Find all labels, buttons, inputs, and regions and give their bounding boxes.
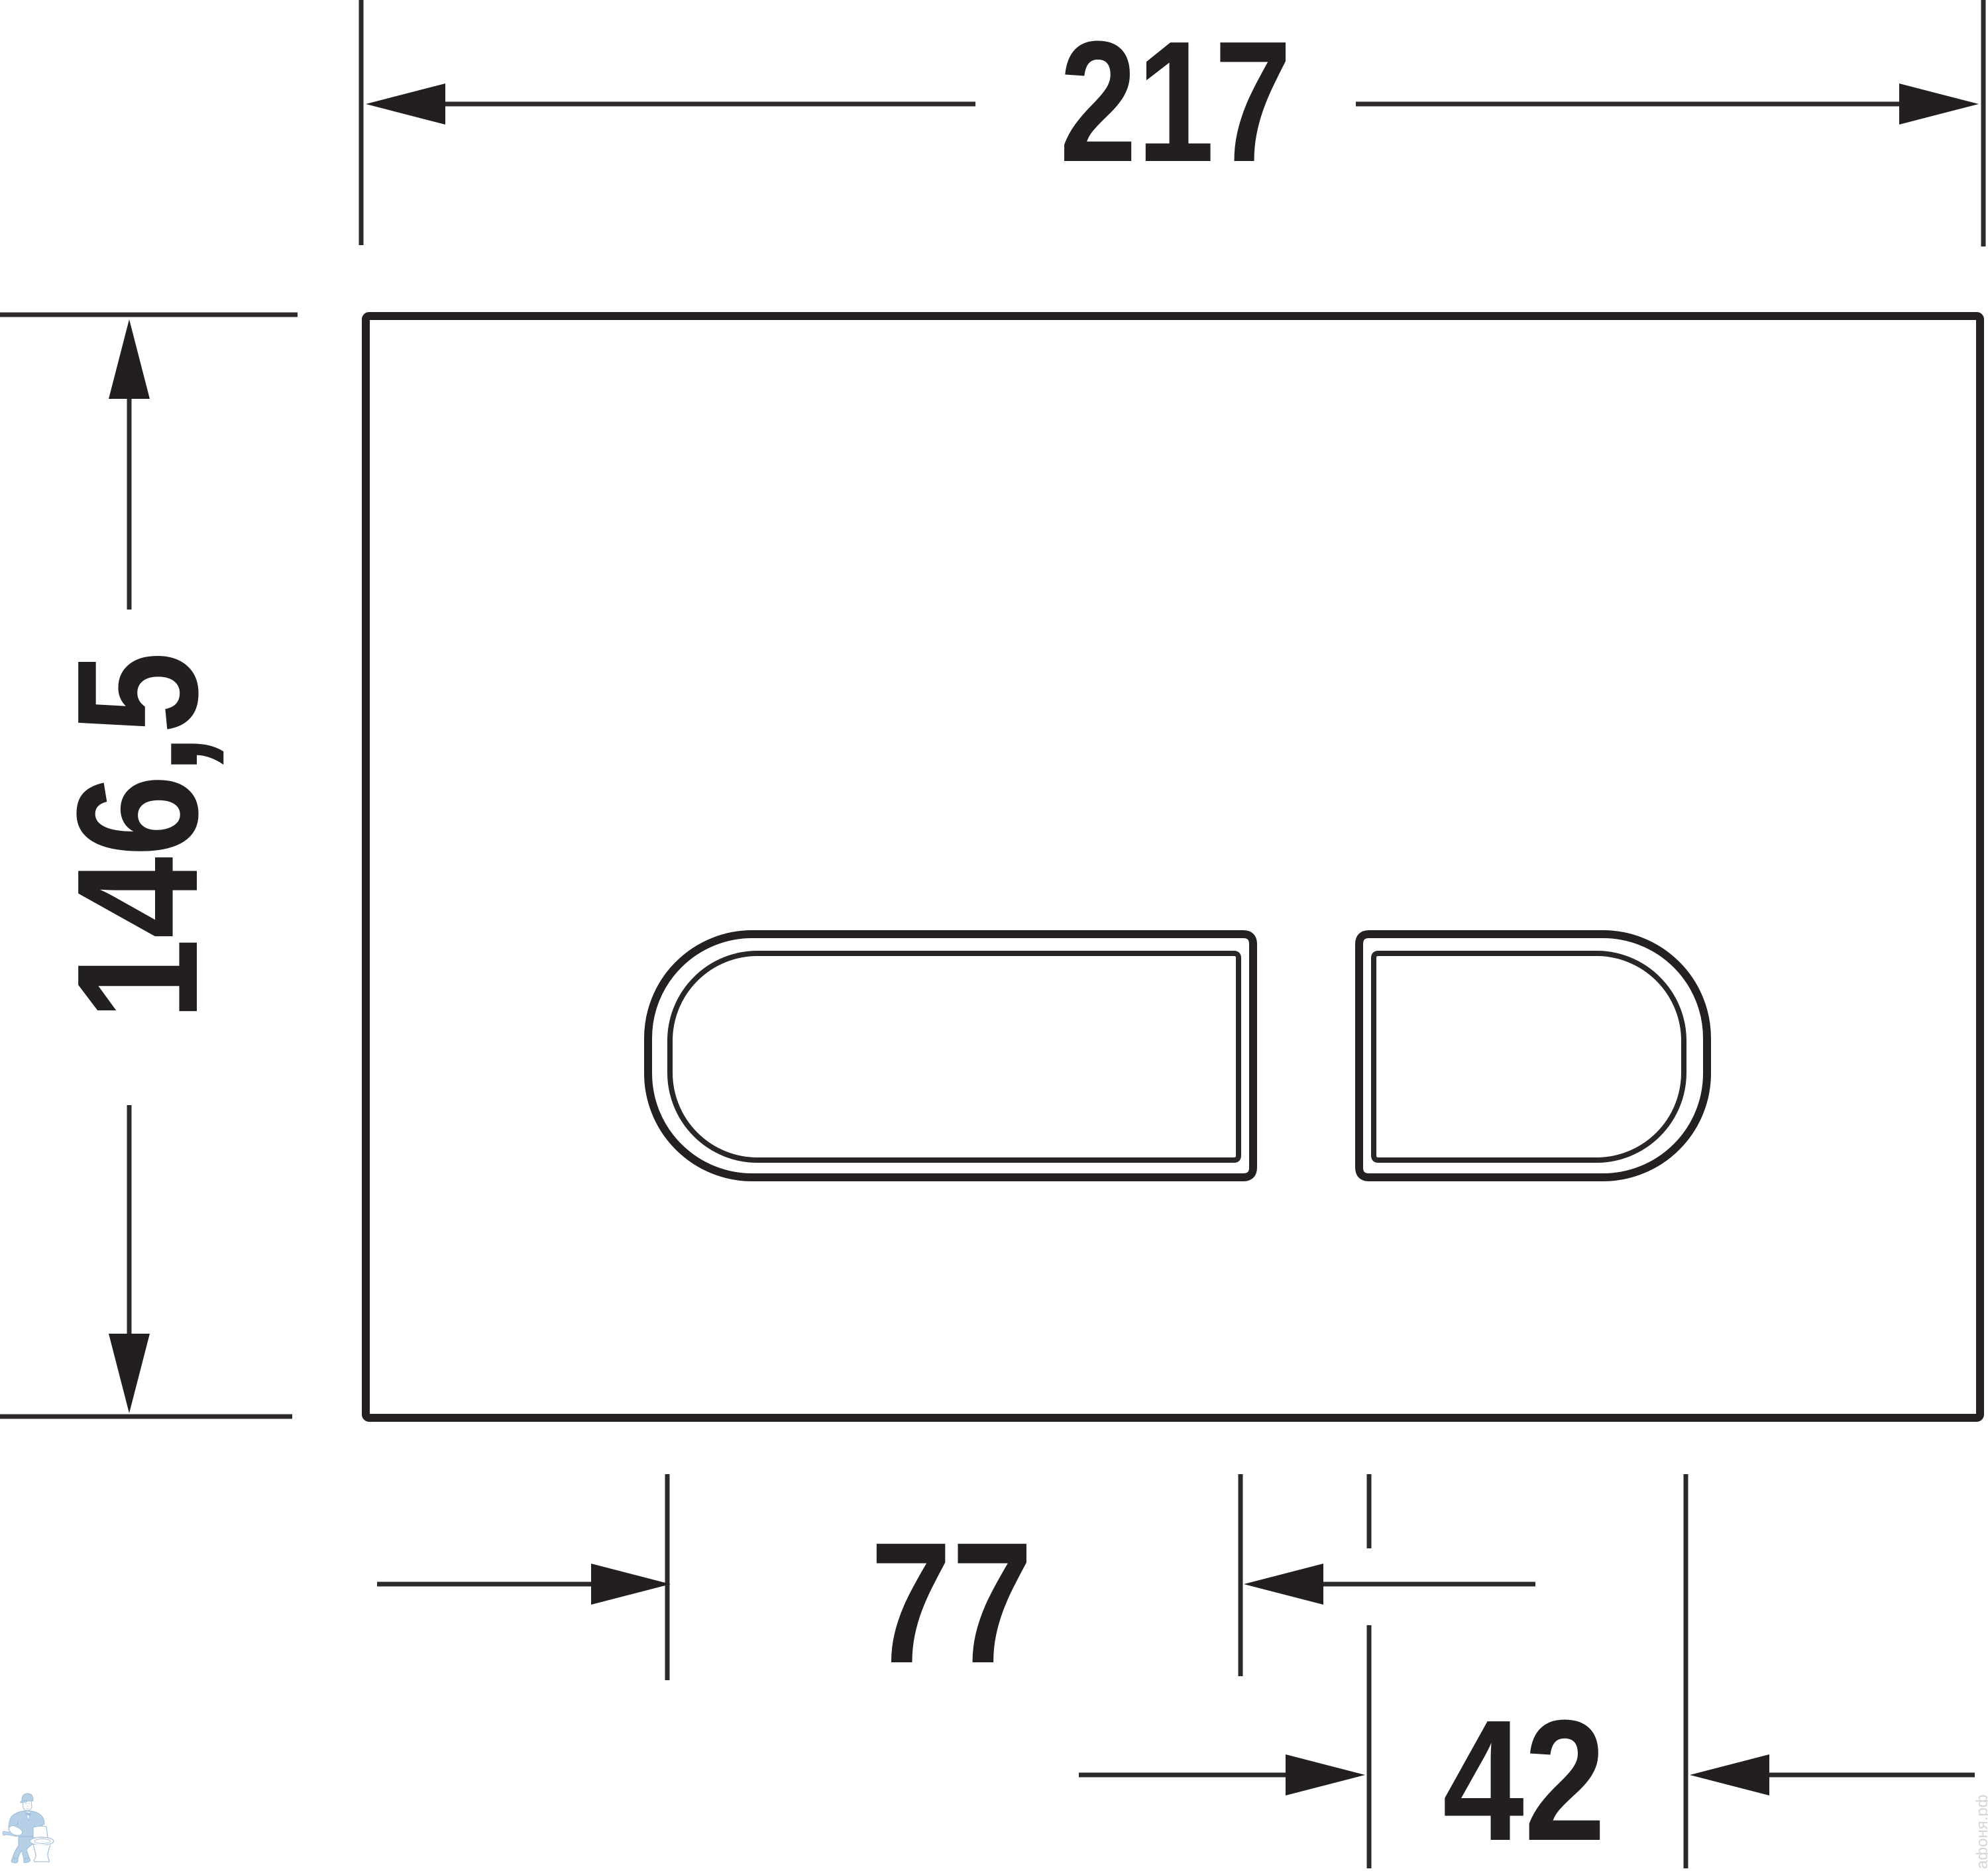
svg-text:42: 42 (1443, 1684, 1606, 1871)
svg-text:77: 77 (870, 1507, 1032, 1699)
svg-text:217: 217 (1060, 6, 1292, 198)
svg-text:афоня.рф: афоня.рф (1973, 1795, 1988, 1869)
svg-text:146,5: 146,5 (42, 652, 234, 1020)
